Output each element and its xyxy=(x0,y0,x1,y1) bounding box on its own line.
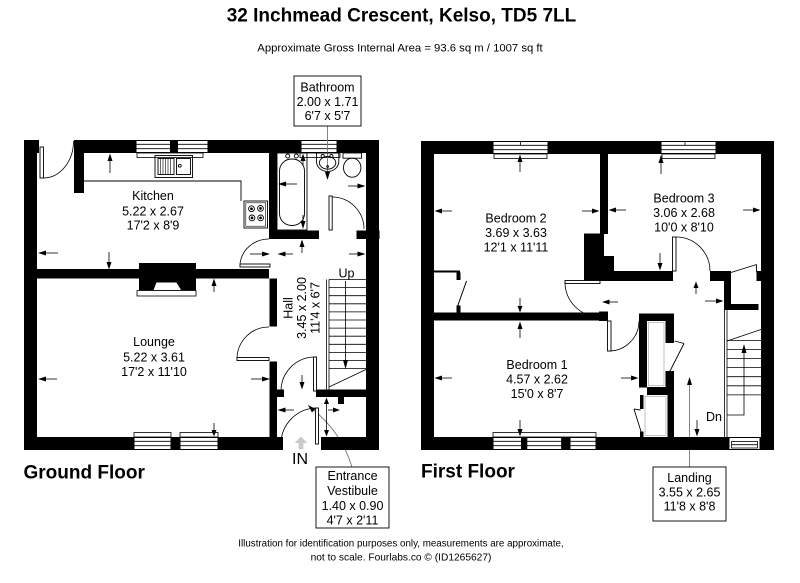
svg-text:4.57 x 2.62: 4.57 x 2.62 xyxy=(506,373,568,387)
svg-text:Bedroom 2: Bedroom 2 xyxy=(485,212,546,226)
svg-text:Lounge: Lounge xyxy=(133,335,175,349)
svg-text:5.22 x 2.67: 5.22 x 2.67 xyxy=(122,205,184,219)
svg-text:Hall: Hall xyxy=(282,297,296,319)
svg-text:Bathroom: Bathroom xyxy=(300,81,354,95)
svg-text:Entrance: Entrance xyxy=(327,469,377,483)
svg-text:3.45 x 2.00: 3.45 x 2.00 xyxy=(295,277,309,339)
svg-text:Ground Floor: Ground Floor xyxy=(24,463,146,484)
svg-text:Approximate Gross Internal Are: Approximate Gross Internal Area = 93.6 s… xyxy=(257,43,543,55)
svg-text:Kitchen: Kitchen xyxy=(132,189,174,203)
svg-text:2.00 x 1.71: 2.00 x 1.71 xyxy=(297,95,359,109)
svg-text:4'7 x 2'11: 4'7 x 2'11 xyxy=(327,514,379,528)
svg-text:6'7 x 5'7: 6'7 x 5'7 xyxy=(305,109,351,123)
svg-text:5.22 x 3.61: 5.22 x 3.61 xyxy=(123,351,185,365)
svg-text:12'1 x 11'11: 12'1 x 11'11 xyxy=(484,241,549,255)
svg-text:Bedroom 3: Bedroom 3 xyxy=(653,192,714,206)
svg-text:Dn: Dn xyxy=(706,410,722,424)
svg-text:32 Inchmead Crescent, Kelso, T: 32 Inchmead Crescent, Kelso, TD5 7LL xyxy=(227,6,577,27)
svg-text:1.40 x 0.90: 1.40 x 0.90 xyxy=(322,499,384,513)
svg-text:17'2 x 11'10: 17'2 x 11'10 xyxy=(121,365,187,379)
svg-text:First Floor: First Floor xyxy=(421,462,516,483)
svg-text:Landing: Landing xyxy=(667,471,712,485)
svg-text:IN: IN xyxy=(292,451,308,468)
svg-text:Illustration for identificatio: Illustration for identification purposes… xyxy=(238,539,563,550)
svg-text:3.55 x 2.65: 3.55 x 2.65 xyxy=(659,486,721,500)
svg-text:3.06 x 2.68: 3.06 x 2.68 xyxy=(653,206,715,220)
svg-text:17'2 x 8'9: 17'2 x 8'9 xyxy=(127,219,180,233)
svg-text:Bedroom 1: Bedroom 1 xyxy=(506,358,567,372)
svg-text:15'0 x 8'7: 15'0 x 8'7 xyxy=(511,387,564,401)
svg-text:11'4 x 6'7: 11'4 x 6'7 xyxy=(309,282,323,334)
svg-text:3.69 x 3.63: 3.69 x 3.63 xyxy=(485,226,547,240)
svg-text:Vestibule: Vestibule xyxy=(327,484,378,498)
svg-text:10'0 x 8'10: 10'0 x 8'10 xyxy=(654,221,714,235)
svg-text:11'8 x 8'8: 11'8 x 8'8 xyxy=(664,500,716,514)
svg-text:Up: Up xyxy=(339,267,355,281)
svg-text:not to scale. Fourlabs.co © (I: not to scale. Fourlabs.co © (ID1265627) xyxy=(311,553,492,564)
